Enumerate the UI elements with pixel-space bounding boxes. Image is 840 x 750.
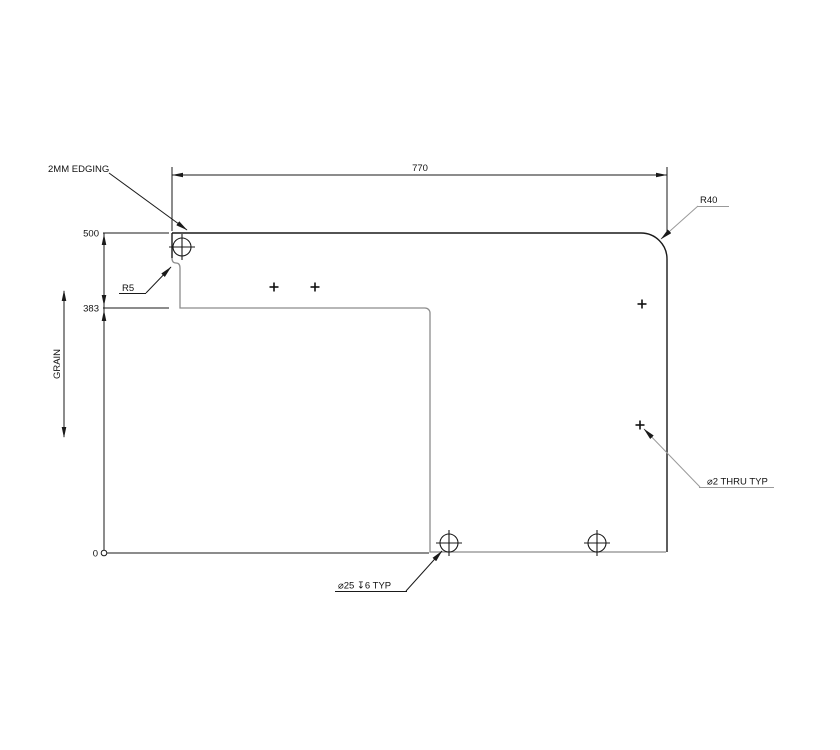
arrowhead — [102, 295, 107, 306]
drawing-sheet: 770 500 383 0 GRAIN 2MM EDGING R40 R5 — [0, 0, 840, 750]
note-r5-label: R5 — [122, 283, 134, 294]
note-dia25-cbore-label: ⌀25 ↧6 TYP — [338, 581, 391, 592]
plus-mark — [636, 421, 645, 430]
note-r5: R5 — [119, 267, 171, 294]
leader-line — [146, 267, 171, 293]
ordinate-dimensions — [101, 233, 429, 556]
dimension-770 — [172, 167, 667, 232]
ordinate-500-label: 500 — [83, 229, 99, 240]
note-dia2-thru-label: ⌀2 THRU TYP — [707, 477, 768, 488]
part-edge-gray — [172, 258, 666, 552]
ordinate-0-label: 0 — [93, 549, 98, 560]
arrowhead — [102, 310, 107, 321]
plus-mark — [638, 300, 647, 309]
arrowhead — [656, 173, 667, 178]
note-dia25-cbore: ⌀25 ↧6 TYP — [335, 551, 442, 592]
part-outline — [172, 233, 667, 552]
arrowhead — [102, 234, 107, 245]
arrowhead — [62, 427, 67, 438]
hole-marker — [169, 234, 195, 260]
note-2mm-edging-label: 2MM EDGING — [48, 164, 109, 175]
part-edge-dark — [172, 233, 667, 552]
grain-label: GRAIN — [52, 349, 63, 379]
arrowhead — [62, 290, 67, 301]
ordinate-origin-marker — [101, 550, 107, 556]
plus-mark — [311, 283, 320, 292]
note-dia2-thru: ⌀2 THRU TYP — [644, 429, 774, 488]
plus-mark — [270, 283, 279, 292]
ordinate-383-label: 383 — [83, 304, 99, 315]
dim-770-label: 770 — [412, 163, 428, 174]
cbore-hole-markers — [169, 234, 610, 556]
thru-hole-plus-marks — [270, 283, 647, 430]
leader-line — [109, 173, 187, 230]
leader-line — [644, 429, 700, 487]
technical-drawing: 770 500 383 0 GRAIN 2MM EDGING R40 R5 — [0, 0, 840, 750]
note-r40: R40 — [661, 195, 729, 239]
arrowhead — [172, 173, 183, 178]
note-2mm-edging: 2MM EDGING — [48, 164, 187, 230]
leader-line — [406, 551, 442, 591]
note-r40-label: R40 — [700, 195, 717, 206]
